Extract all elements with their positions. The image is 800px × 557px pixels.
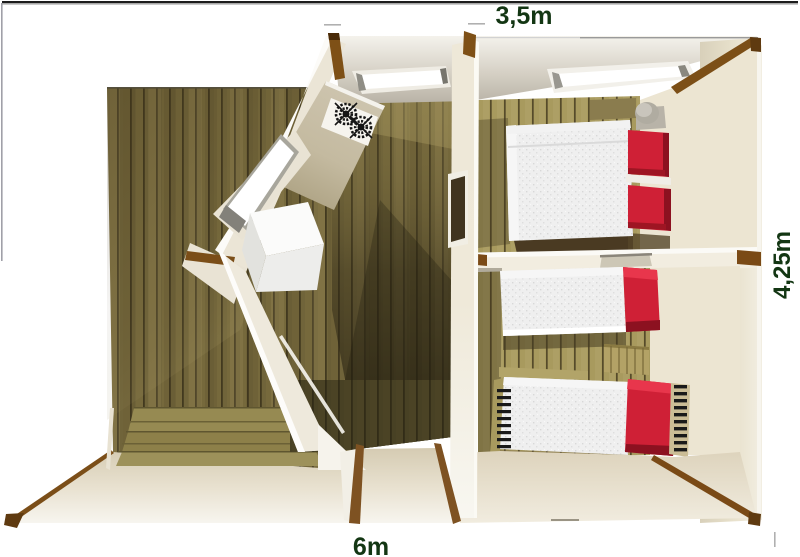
svg-text:4,25m: 4,25m [769, 231, 796, 299]
svg-text:6m: 6m [353, 533, 389, 557]
svg-text:3,5m: 3,5m [496, 2, 553, 30]
